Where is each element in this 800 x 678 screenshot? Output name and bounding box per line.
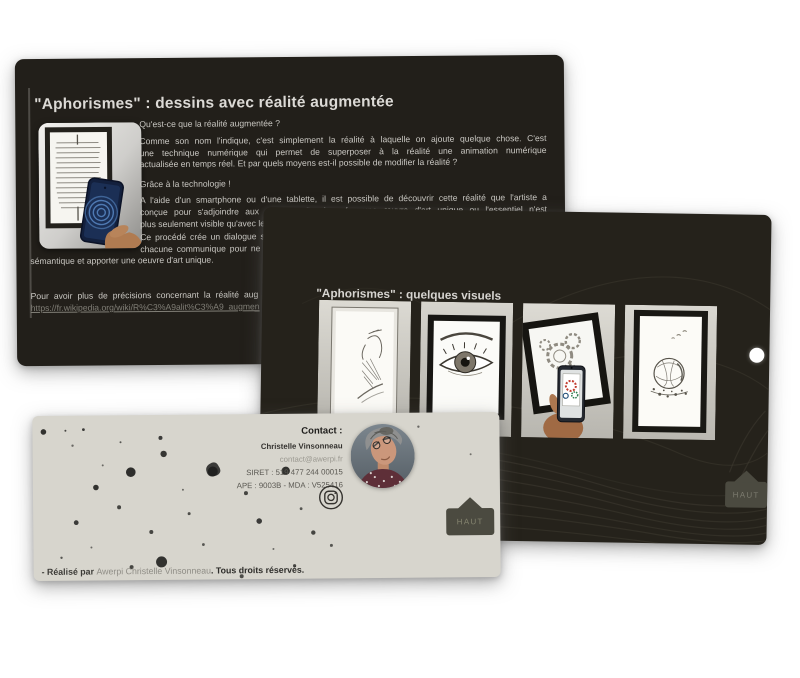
frame-and-phone-illustration [38, 122, 142, 249]
collage-stage: "Aphorismes" : dessins avec réalité augm… [0, 0, 800, 678]
contact-name: Christelle Vinsonneau [163, 441, 343, 452]
paragraph-dialogue-line3: sémantique et apporter une oeuvre d'art … [30, 255, 213, 268]
paragraph-question1: Qu'est-ce que la réalité augmentée ? [139, 116, 546, 131]
contact-label: Contact : [162, 425, 342, 438]
avatar [350, 424, 415, 489]
footer-suffix: . Tous droits réservés. [211, 564, 304, 575]
paragraph-definition: Comme son nom l'indique, c'est simplemen… [139, 133, 546, 172]
footer-awerpi-link[interactable]: Awerpi Christelle Vinsonneau [96, 565, 211, 576]
slide1-title: "Aphorismes" : dessins avec réalité augm… [34, 94, 394, 115]
artwork-sphere-splash-drawing [623, 305, 717, 440]
footer-prefix: - Réalisé par [42, 566, 97, 576]
artwork-gears-with-phone [521, 303, 615, 438]
contact-email-link[interactable]: contact@awerpi.fr [163, 454, 343, 465]
contact-card: Contact : Christelle Vinsonneau contact@… [32, 412, 500, 581]
haut-button-contact[interactable]: HAUT [446, 508, 494, 535]
instagram-icon[interactable] [318, 484, 344, 510]
ar-demo-photo [38, 122, 142, 249]
wikipedia-link[interactable]: https://fr.wikipedia.org/wiki/R%C3%A9ali… [31, 301, 260, 315]
contact-siret: SIRET : 519 477 244 00015 [163, 467, 343, 478]
paragraph-technology: Grâce à la technologie ! [140, 176, 547, 191]
haut-button-slide2[interactable]: HAUT [725, 481, 767, 508]
title-accent-line [28, 88, 32, 318]
contact-block: Contact : Christelle Vinsonneau contact@… [162, 425, 343, 495]
contact-ape: APE : 9003B - MDA : V525416 [163, 480, 343, 491]
